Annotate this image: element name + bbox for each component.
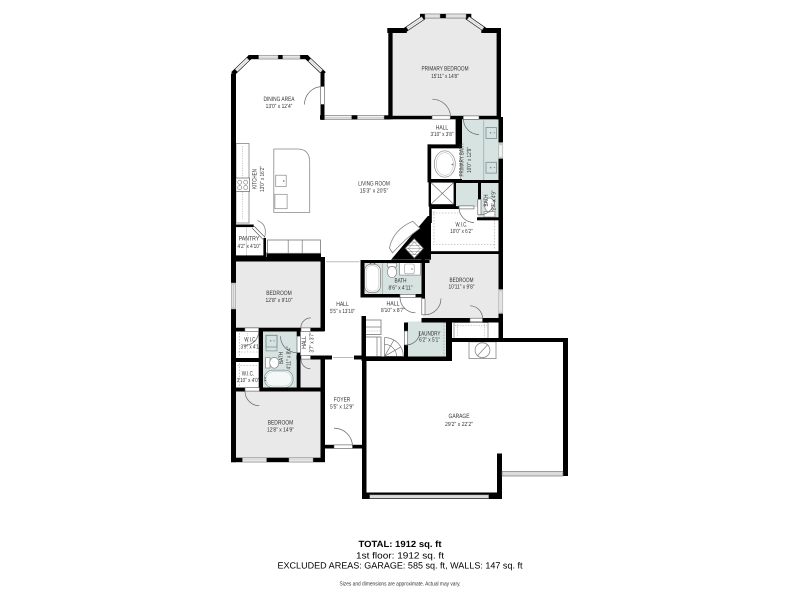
svg-text:HALL: HALL bbox=[436, 124, 449, 131]
svg-text:Sizes and dimensions are appro: Sizes and dimensions are approximate. Ac… bbox=[340, 581, 461, 588]
svg-text:10'0" x 12'9": 10'0" x 12'9" bbox=[466, 147, 473, 173]
svg-text:KITCHEN: KITCHEN bbox=[251, 169, 258, 189]
svg-text:5'5" x 13'10": 5'5" x 13'10" bbox=[330, 308, 355, 315]
svg-text:15'11" x 14'8": 15'11" x 14'8" bbox=[431, 73, 459, 80]
svg-text:8'6" x 4'11": 8'6" x 4'11" bbox=[389, 284, 413, 291]
svg-text:EXCLUDED AREAS: GARAGE: 585 sq: EXCLUDED AREAS: GARAGE: 585 sq. ft, WALL… bbox=[278, 561, 524, 571]
svg-text:PRIMARY BATH: PRIMARY BATH bbox=[459, 143, 466, 176]
svg-text:6'2" x 5'1": 6'2" x 5'1" bbox=[419, 337, 440, 344]
svg-text:12'8" x 9'10": 12'8" x 9'10" bbox=[266, 297, 293, 304]
svg-text:BATH: BATH bbox=[395, 277, 407, 284]
svg-text:13'0" x 16'2": 13'0" x 16'2" bbox=[259, 166, 266, 192]
svg-text:GARAGE: GARAGE bbox=[449, 413, 470, 420]
svg-text:FOYER: FOYER bbox=[334, 396, 351, 403]
svg-text:10'0" x 6'2": 10'0" x 6'2" bbox=[450, 228, 473, 235]
svg-text:10'11" x 9'8": 10'11" x 9'8" bbox=[449, 283, 475, 290]
svg-text:15'3" x 20'5": 15'3" x 20'5" bbox=[360, 188, 389, 195]
svg-text:HALL: HALL bbox=[301, 336, 308, 349]
svg-text:3'10" x 4'0": 3'10" x 4'0" bbox=[237, 377, 260, 384]
svg-text:1st floor: 1912 sq. ft: 1st floor: 1912 sq. ft bbox=[356, 550, 445, 560]
svg-text:W.I.C.: W.I.C. bbox=[242, 370, 255, 377]
svg-text:BATH: BATH bbox=[483, 194, 490, 206]
svg-text:PRIMARY BEDROOM: PRIMARY BEDROOM bbox=[422, 66, 469, 73]
svg-text:5'5" x 12'9": 5'5" x 12'9" bbox=[330, 403, 354, 410]
svg-text:HALL: HALL bbox=[387, 300, 400, 307]
svg-text:PANTRY: PANTRY bbox=[239, 236, 260, 243]
svg-text:3'10" x 3'8": 3'10" x 3'8" bbox=[431, 131, 454, 138]
svg-text:BEDROOM: BEDROOM bbox=[268, 419, 294, 426]
svg-text:12'8" x 14'9": 12'8" x 14'9" bbox=[267, 426, 294, 433]
svg-text:2'7" x 4'9": 2'7" x 4'9" bbox=[491, 191, 498, 211]
svg-text:4'11" x 8'4": 4'11" x 8'4" bbox=[285, 347, 292, 370]
svg-text:BEDROOM: BEDROOM bbox=[450, 277, 474, 284]
svg-text:LAUNDRY: LAUNDRY bbox=[419, 330, 442, 337]
svg-text:29'2" x 22'2": 29'2" x 22'2" bbox=[445, 421, 473, 428]
svg-text:HALL: HALL bbox=[336, 301, 349, 308]
svg-text:3'7" x 3'7": 3'7" x 3'7" bbox=[309, 333, 316, 353]
svg-text:BATH: BATH bbox=[278, 352, 285, 364]
svg-text:BEDROOM: BEDROOM bbox=[266, 290, 292, 297]
svg-text:LIVING ROOM: LIVING ROOM bbox=[358, 181, 390, 188]
svg-text:W.I.C.: W.I.C. bbox=[456, 222, 468, 229]
svg-text:W.I.C.: W.I.C. bbox=[244, 336, 257, 343]
svg-text:13'0" x 12'4": 13'0" x 12'4" bbox=[266, 103, 293, 110]
svg-text:TOTAL: 1912 sq. ft: TOTAL: 1912 sq. ft bbox=[359, 539, 442, 549]
svg-text:8'10" x 8'7": 8'10" x 8'7" bbox=[381, 307, 405, 314]
svg-text:4'2" x 4'10": 4'2" x 4'10" bbox=[238, 243, 261, 250]
svg-text:DINING AREA: DINING AREA bbox=[264, 96, 296, 103]
svg-text:3'9" x 4'1": 3'9" x 4'1" bbox=[241, 344, 261, 351]
